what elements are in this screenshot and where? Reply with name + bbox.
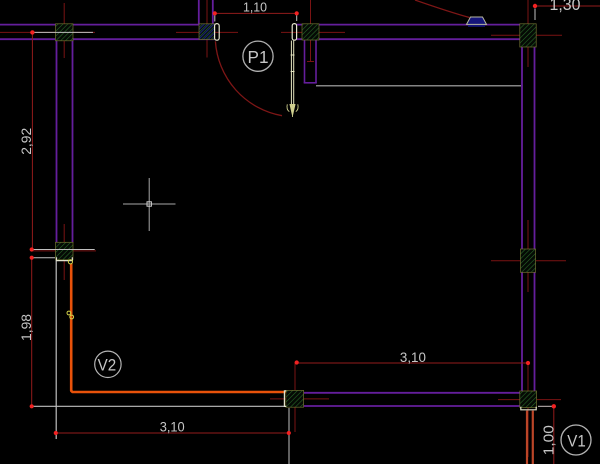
svg-text:V2: V2 <box>98 357 117 375</box>
svg-text:1,30: 1,30 <box>550 0 581 14</box>
svg-text:P1: P1 <box>248 47 269 67</box>
svg-text:1,00: 1,00 <box>540 425 557 455</box>
svg-text:1,10: 1,10 <box>243 0 267 15</box>
svg-text:V1: V1 <box>567 432 586 450</box>
svg-text:1,98: 1,98 <box>19 314 34 341</box>
svg-text:3,10: 3,10 <box>400 350 426 365</box>
svg-text:3,10: 3,10 <box>160 420 185 435</box>
svg-text:2,92: 2,92 <box>19 128 34 155</box>
